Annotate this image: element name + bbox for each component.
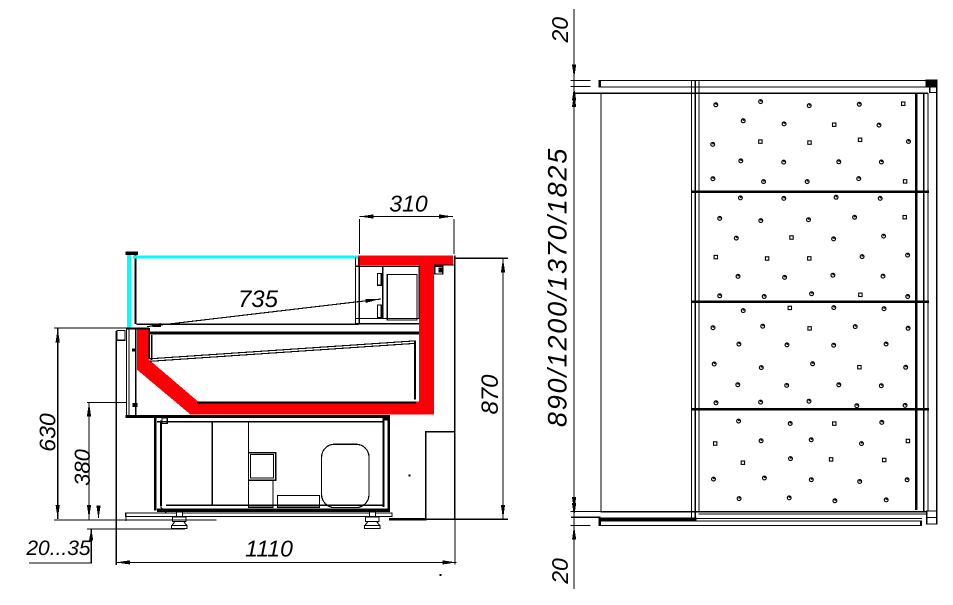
svg-text:20: 20	[547, 558, 573, 585]
svg-text:870: 870	[477, 374, 504, 415]
svg-text:1110: 1110	[245, 535, 293, 561]
svg-text:20: 20	[547, 17, 573, 44]
svg-text:20...35: 20...35	[25, 537, 91, 560]
svg-text:310: 310	[389, 190, 428, 216]
svg-text:735: 735	[238, 286, 279, 313]
svg-text:890/1200/1370/1825: 890/1200/1370/1825	[543, 147, 573, 427]
svg-text:630: 630	[35, 413, 61, 452]
svg-text:380: 380	[70, 448, 95, 485]
